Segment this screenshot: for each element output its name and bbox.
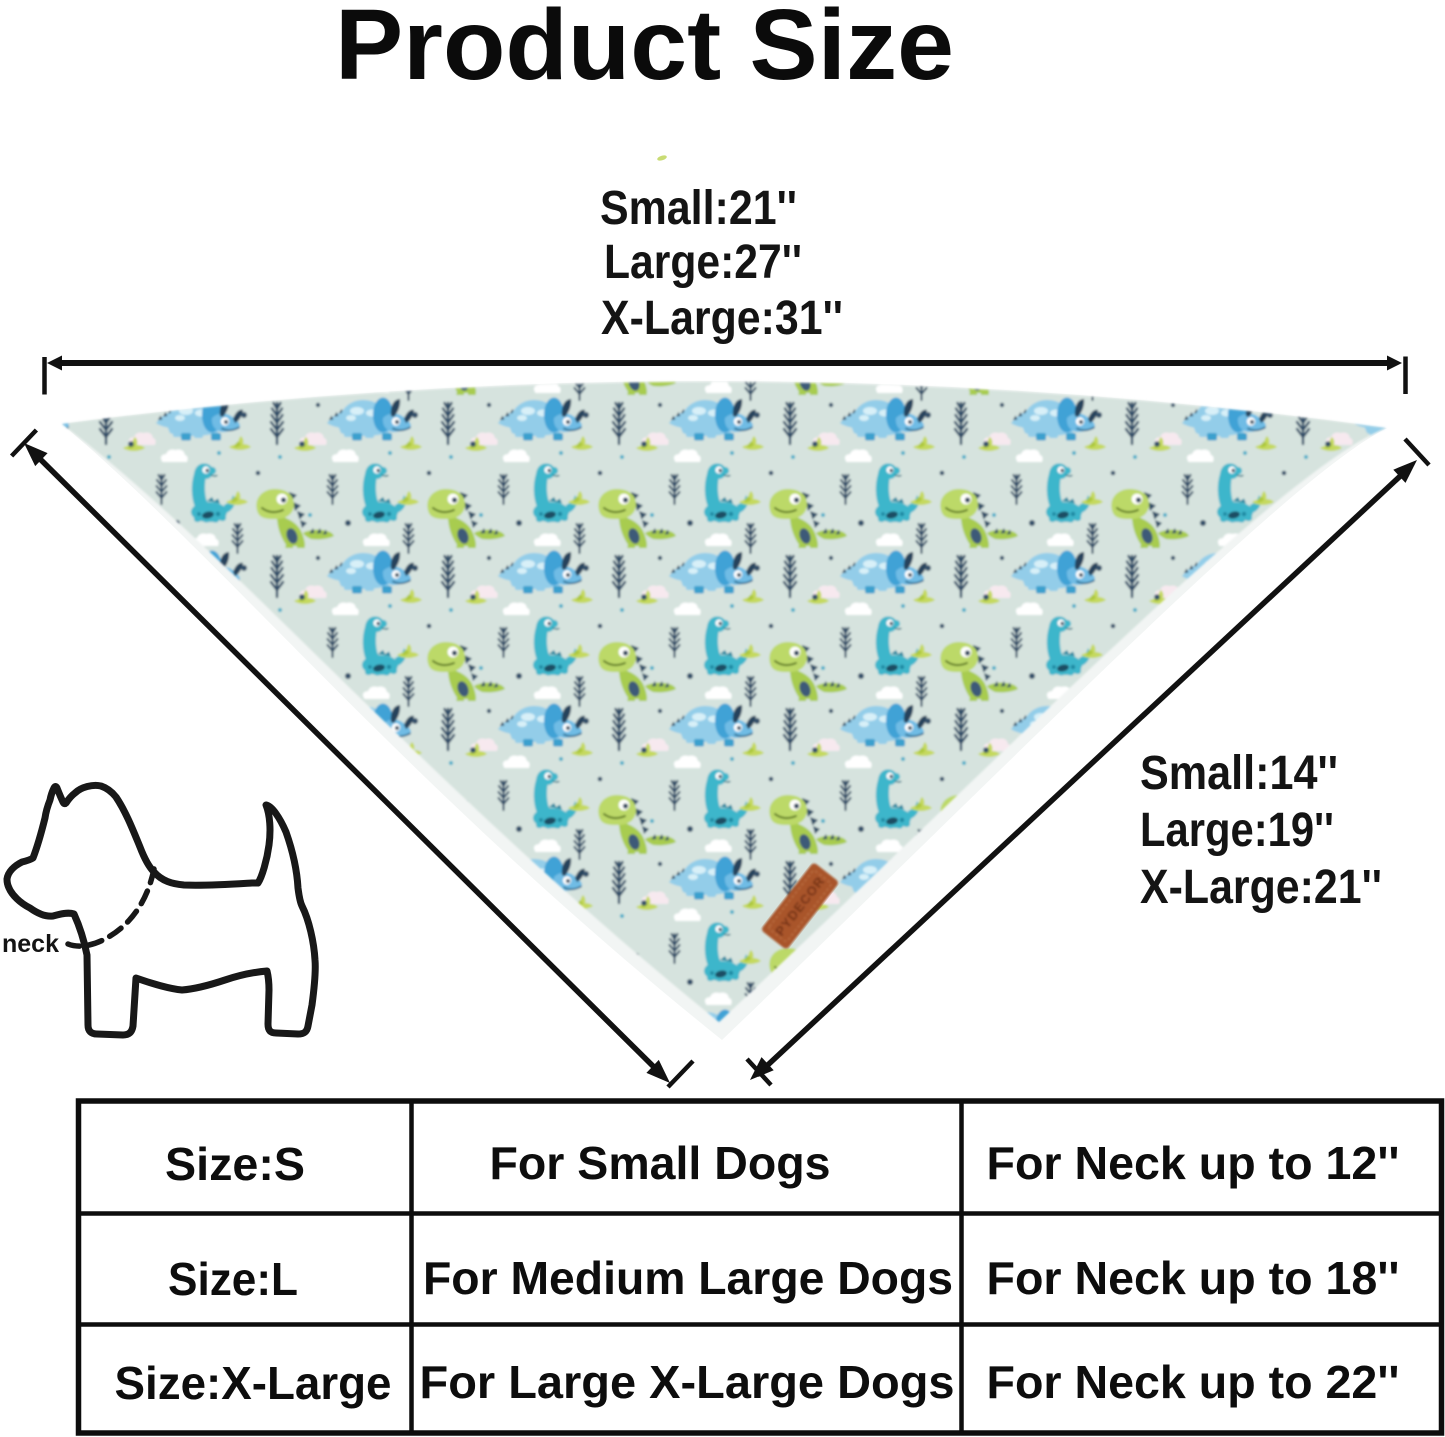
svg-text:neck: neck	[2, 930, 59, 958]
svg-text:X-Large:31'': X-Large:31''	[601, 292, 843, 345]
svg-text:For Small Dogs: For Small Dogs	[490, 1137, 831, 1189]
svg-text:For Neck up to 22'': For Neck up to 22''	[987, 1356, 1400, 1408]
svg-text:For Medium Large Dogs: For Medium Large Dogs	[423, 1252, 953, 1304]
svg-text:Size:S: Size:S	[165, 1138, 305, 1190]
svg-text:Large:19'': Large:19''	[1140, 804, 1334, 857]
svg-text:Size:X-Large: Size:X-Large	[115, 1357, 392, 1409]
svg-text:For Neck up to 18'': For Neck up to 18''	[987, 1252, 1400, 1304]
svg-text:Size:L: Size:L	[168, 1253, 298, 1305]
svg-text:X-Large:21'': X-Large:21''	[1140, 861, 1382, 914]
svg-text:Product Size: Product Size	[335, 0, 954, 101]
svg-text:Large:27'': Large:27''	[604, 236, 802, 289]
svg-text:For Neck up to 12'': For Neck up to 12''	[987, 1137, 1400, 1189]
svg-text:Small:21'': Small:21''	[600, 182, 797, 235]
svg-text:Small:14'': Small:14''	[1140, 747, 1338, 800]
svg-text:For Large X-Large Dogs: For Large X-Large Dogs	[420, 1356, 955, 1408]
